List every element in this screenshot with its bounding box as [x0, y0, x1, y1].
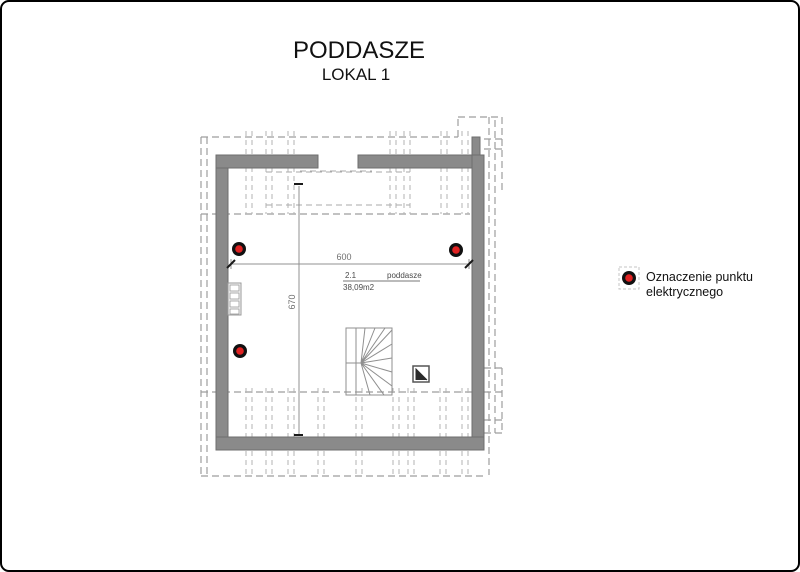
page-subtitle: LOKAL 1 — [322, 65, 390, 84]
page-title: PODDASZE — [293, 37, 425, 64]
room-number: 2.1 — [345, 271, 357, 280]
dimension-width: 600 — [227, 252, 473, 269]
room-area: 38,09m2 — [343, 283, 375, 292]
legend-label-line1: Oznaczenie punktu — [646, 270, 753, 284]
wall-top-right-stub — [472, 137, 480, 157]
chimney-symbol — [413, 366, 429, 382]
room-label: 2.1 poddasze 38,09m2 — [343, 271, 422, 292]
rafter-lines-bottom — [246, 388, 468, 474]
wall-top-left-segment — [216, 155, 318, 168]
legend-electrical-icon-core — [625, 274, 633, 282]
walls — [216, 137, 484, 450]
wall-top-right-segment — [358, 155, 484, 168]
wall-bottom — [216, 437, 484, 450]
floor-plan-canvas: PODDASZE LOKAL 1 — [2, 2, 798, 570]
electrical-point-marker-core — [235, 245, 243, 253]
room-name: poddasze — [387, 271, 422, 280]
radiator — [228, 283, 241, 315]
dimension-width-label: 600 — [336, 252, 351, 262]
drawing-sheet: PODDASZE LOKAL 1 — [0, 0, 800, 572]
electrical-point-marker-core — [236, 347, 244, 355]
staircase — [346, 328, 392, 395]
wall-right — [472, 155, 484, 450]
electrical-point-marker-core — [452, 246, 460, 254]
legend: Oznaczenie punktu elektrycznego — [619, 267, 753, 299]
dimension-height: 670 — [287, 184, 303, 436]
dimension-height-label: 670 — [287, 294, 297, 309]
wall-left — [216, 155, 228, 450]
legend-label-line2: elektrycznego — [646, 285, 723, 299]
